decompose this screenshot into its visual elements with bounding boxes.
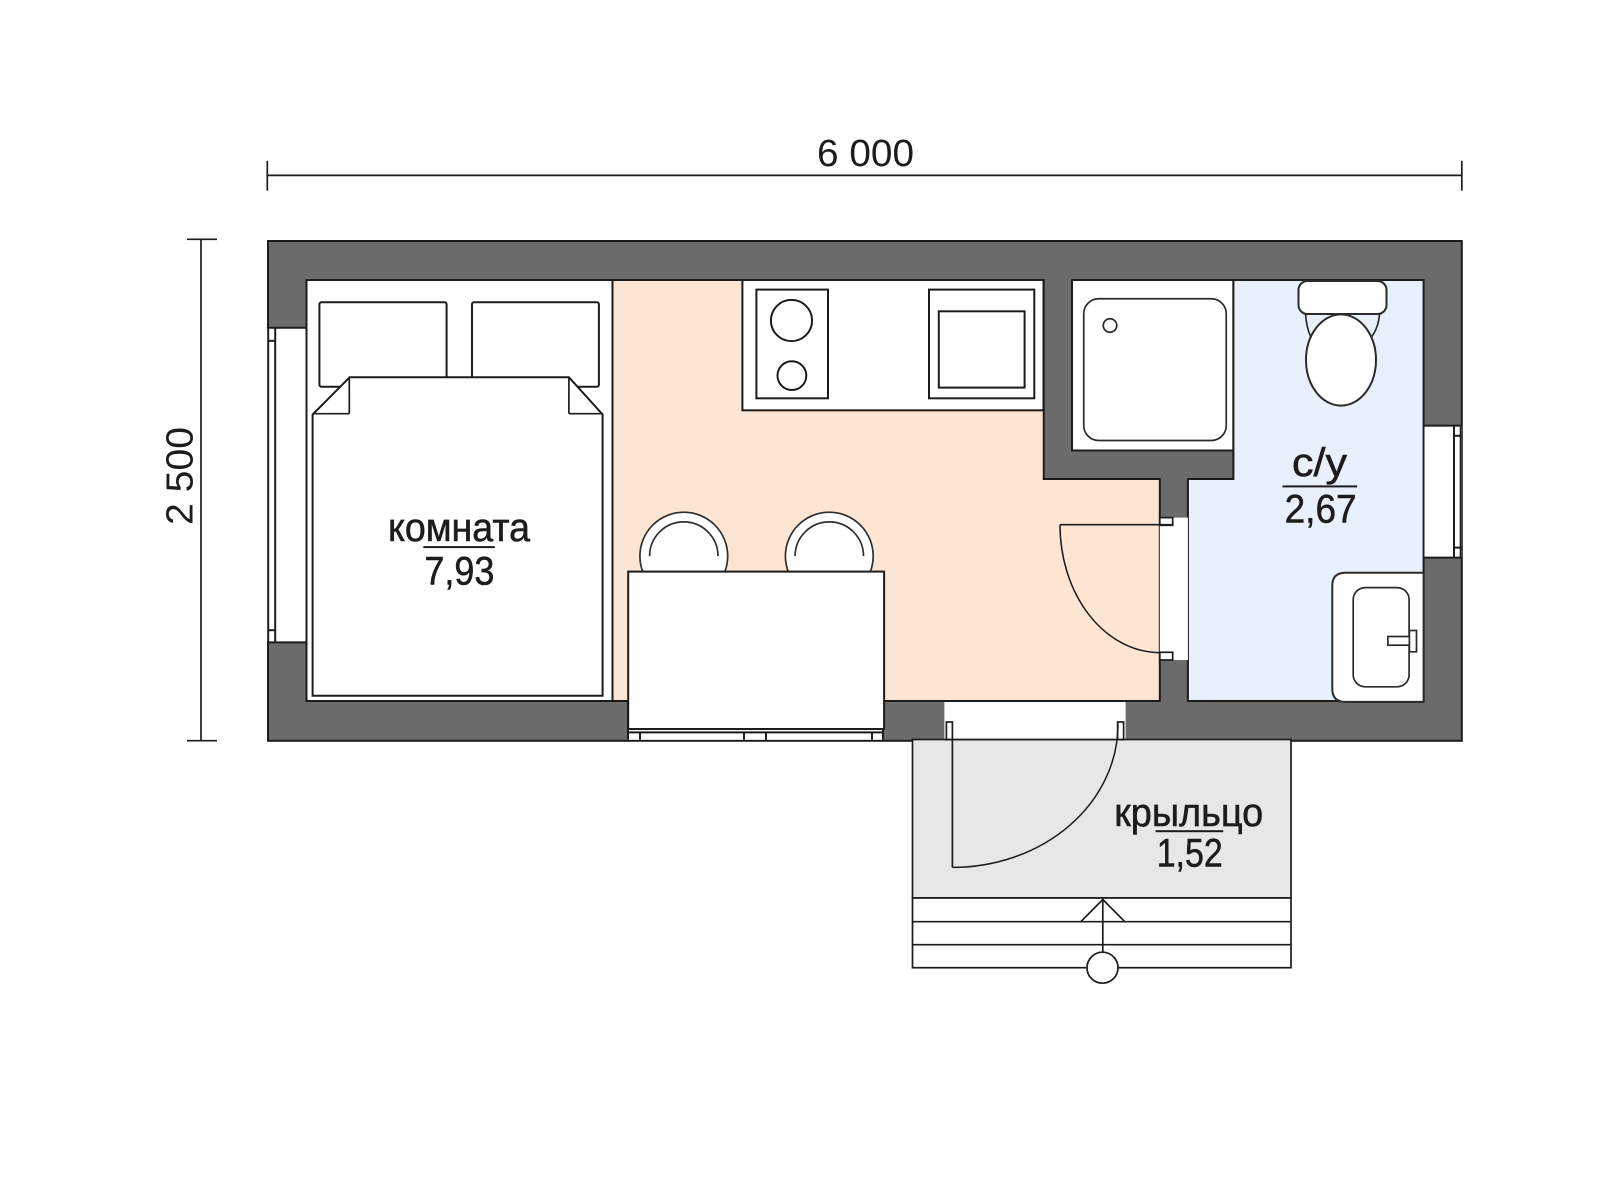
svg-text:7,93: 7,93 — [424, 550, 494, 594]
svg-text:2 500: 2 500 — [160, 427, 202, 525]
svg-text:1,52: 1,52 — [1157, 832, 1223, 876]
svg-text:2,67: 2,67 — [1285, 488, 1357, 532]
svg-text:с/у: с/у — [1292, 441, 1347, 485]
svg-text:6 000: 6 000 — [817, 133, 914, 175]
svg-text:крыльцо: крыльцо — [1114, 791, 1263, 835]
svg-text:комната: комната — [388, 506, 531, 550]
